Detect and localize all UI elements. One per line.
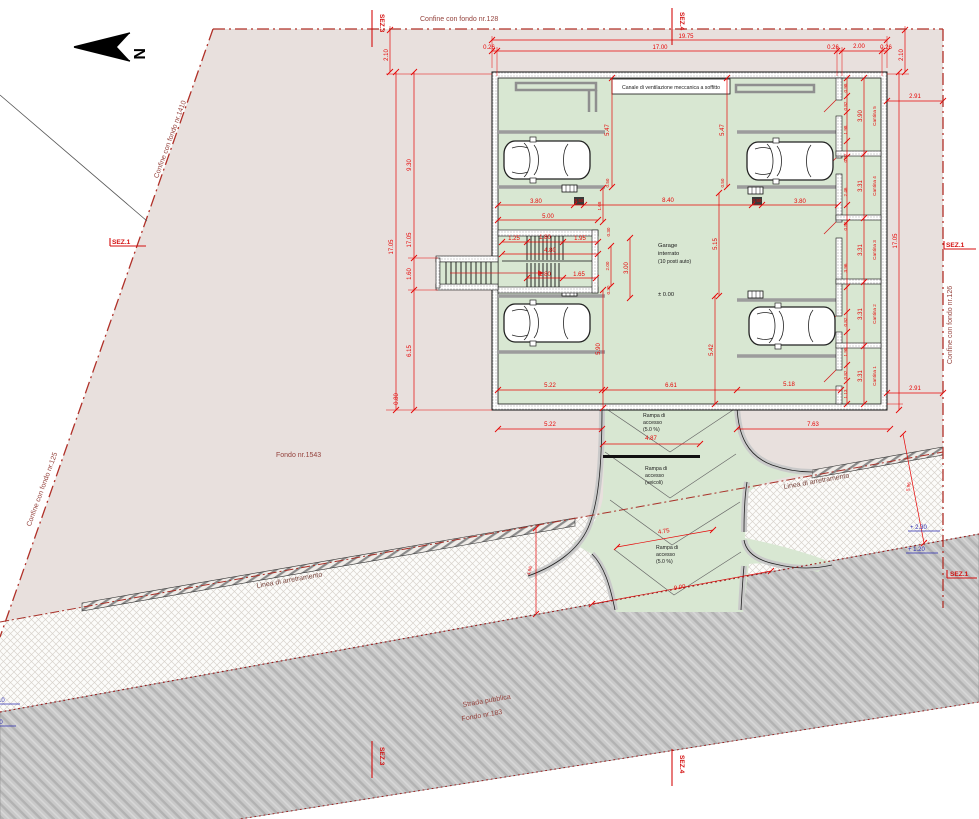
boundary-label-north: Confine con fondo nr.128	[420, 16, 498, 23]
ramp-mid-label-2: accesso	[645, 473, 664, 479]
dim: 1.95	[574, 236, 586, 242]
dim: 1.25	[508, 236, 520, 242]
cantina-label-5: Cantina 5	[872, 106, 877, 126]
elevation-plus-120: + 1.20	[908, 547, 926, 553]
dim: 4.80	[544, 248, 556, 254]
cantina-label-4: Cantina 4	[872, 176, 877, 196]
dim: 17.05	[389, 239, 395, 255]
section-marker-sez4-top: SEZ.4	[678, 12, 685, 31]
dim: 5.22	[544, 383, 556, 389]
dim: 2.00	[853, 44, 865, 50]
dim: 0.82	[843, 221, 848, 230]
section-marker-sez4-bottom: SEZ.4	[678, 755, 685, 774]
dim: 0.50	[605, 178, 610, 187]
dim: 1.13	[843, 389, 848, 398]
garage-label-1: Garage	[658, 243, 677, 249]
dim: 5.47	[605, 124, 611, 136]
ramp-top-label-2: accesso	[643, 420, 662, 426]
garage-level-label: ± 0.00	[658, 292, 674, 298]
dim: 7.63	[807, 422, 819, 428]
car-bottom-left	[504, 300, 590, 346]
ramp-top-label-3: (5.0 %)	[643, 427, 660, 433]
vent-channel-label: Canale di ventilazione meccanica a soffi…	[622, 85, 720, 91]
ramp-bottom-label-2: accesso	[656, 552, 675, 558]
dim: 1.60	[407, 268, 413, 280]
dim: 3.31	[858, 244, 864, 256]
dim: 3.90	[858, 110, 864, 122]
dim: 17.00	[652, 45, 668, 51]
dim: 6.15	[407, 345, 413, 357]
section-marker-sez1-right: SEZ.1	[946, 242, 965, 249]
ramp-mid-label-3: (veicoli)	[645, 480, 663, 486]
dim: 0.26	[827, 45, 839, 51]
dim: 2.10	[384, 49, 390, 61]
dim: 0.50	[753, 198, 762, 203]
ramp-bottom-label-1: Rampa di	[656, 545, 678, 551]
north-arrow	[74, 33, 130, 61]
dim: 3.80	[530, 199, 542, 205]
section-marker-sez1-road: SEZ.1	[950, 571, 969, 578]
elevation-left-upper: 1.10	[0, 698, 5, 704]
dim: 8.40	[662, 198, 674, 204]
car-top-left	[504, 137, 590, 183]
dim: 0.80	[394, 393, 400, 405]
dim: 3.31	[858, 308, 864, 320]
section-marker-sez3-top: SEZ.3	[378, 14, 385, 33]
dim: 1.80	[539, 235, 551, 241]
section-marker-sez1-left: SEZ.1	[112, 239, 131, 246]
dim: 5.42	[709, 344, 715, 356]
dim: 0.50	[720, 178, 725, 187]
dim: 3.31	[858, 370, 864, 382]
dim: 3.96	[843, 263, 848, 272]
ramp-bottom-label-3: (5.0 %)	[656, 559, 673, 565]
boundary-label-east: Confine con fondo nr.126	[947, 286, 954, 364]
dim: 1.80	[539, 272, 551, 278]
dim: 0.82	[843, 370, 848, 379]
site-plan-drawing: N Confine con fondo nr.128 Confine con f…	[0, 0, 979, 819]
dim: 1.68	[597, 201, 602, 210]
dim: 5.22	[544, 422, 556, 428]
dim: 0.82	[843, 101, 848, 110]
dim: 2.91	[909, 386, 921, 392]
dim: 1.65	[573, 272, 585, 278]
dim: 5.00	[542, 214, 554, 220]
dim: 2.00	[605, 261, 610, 270]
dim: 3.31	[858, 180, 864, 192]
section-marker-sez3-bottom: SEZ.3	[378, 747, 385, 766]
dim: 0.82	[843, 153, 848, 162]
ramp-mid-label-1: Rampa di	[645, 466, 667, 472]
north-letter: N	[130, 48, 147, 60]
dim: 6.61	[665, 383, 677, 389]
dim: 0.30	[606, 285, 611, 294]
garage-label-3: (10 posti auto)	[658, 259, 691, 265]
dim: 0.26	[880, 45, 892, 51]
dim: 0.26	[483, 45, 495, 51]
dim: 5.90	[596, 343, 602, 355]
car-top-right	[747, 138, 833, 184]
dim: 4.87	[645, 436, 657, 442]
dim: 5.47	[720, 124, 726, 136]
cantina-label-2: Cantina 2	[872, 304, 877, 324]
cantina-label-3: Cantina 3	[872, 240, 877, 260]
survey-line	[0, 95, 147, 221]
ramp-top-label-1: Rampa di	[643, 413, 665, 419]
dim: 19.75	[678, 34, 694, 40]
plan-canvas: N Confine con fondo nr.128 Confine con f…	[0, 0, 979, 819]
dim: 3.00	[624, 262, 630, 274]
ramp-threshold-bar	[603, 455, 700, 458]
garage-label-2: interrato	[658, 251, 679, 257]
dim: 17.05	[893, 233, 899, 249]
site-parcel-label: Fondo nr.1543	[276, 452, 321, 459]
dim: 1.98	[843, 125, 848, 134]
cantina-label-1: Cantina 1	[872, 366, 877, 386]
elevation-plus-230: + 2.30	[910, 525, 928, 531]
dim: 5.18	[783, 382, 795, 388]
dim: 0.50	[575, 198, 584, 203]
dim: 0.82	[843, 317, 848, 326]
garage-building	[436, 72, 887, 410]
dim: 3.80	[794, 199, 806, 205]
dim: 0.98	[843, 83, 848, 92]
dim: 9.30	[407, 159, 413, 171]
dim: 5.15	[713, 238, 719, 250]
dim: 17.05	[407, 232, 413, 248]
car-bottom-right	[749, 303, 835, 349]
dim: 1.98	[843, 347, 848, 356]
dim: 0.30	[606, 227, 611, 236]
dim: 2.10	[899, 49, 905, 61]
dim: 2.91	[909, 94, 921, 100]
dim: 2.46	[843, 187, 848, 196]
